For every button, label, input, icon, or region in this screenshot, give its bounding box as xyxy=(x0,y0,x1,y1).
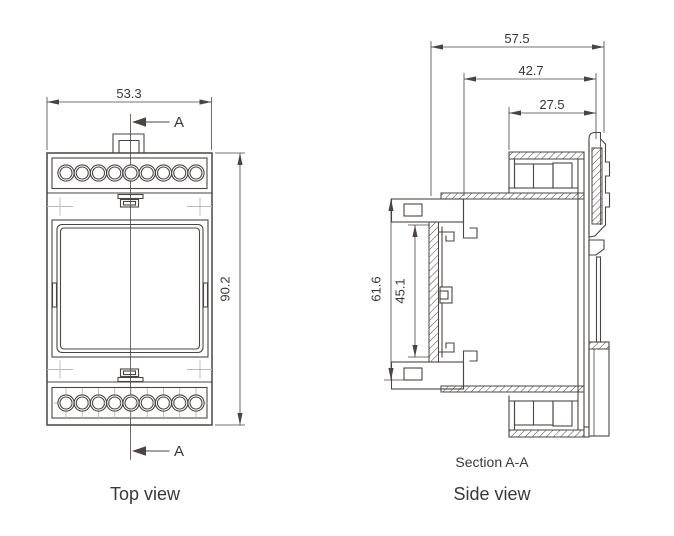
dim-arrow-icon xyxy=(431,44,443,49)
front-button-section xyxy=(440,287,452,303)
din-latch-tab xyxy=(113,134,144,153)
terminal-block-bottom xyxy=(52,388,208,419)
section-arrow-icon xyxy=(132,117,146,127)
device-body-top-view xyxy=(47,134,212,425)
dim-arrow-icon xyxy=(388,199,393,211)
section-label: Section A-A xyxy=(455,454,529,470)
display-window xyxy=(52,220,208,357)
dim-arrow-icon xyxy=(584,76,596,81)
bottom-terminal-section xyxy=(509,396,584,437)
terminal-row-top xyxy=(58,165,204,181)
dim-arrow-icon xyxy=(509,110,521,115)
dim-arrow-icon xyxy=(388,368,393,380)
technical-drawing: 53.3 90.2 A A Top view xyxy=(0,0,674,536)
dim-terminal-depth-label: 27.5 xyxy=(539,97,564,112)
terminal-row-bottom xyxy=(54,388,208,418)
din-rail-clip xyxy=(589,133,610,343)
mounting-foot xyxy=(589,342,609,436)
front-window-wall xyxy=(429,222,454,362)
dim-rail-to-front-label: 42.7 xyxy=(518,63,543,78)
dim-height: 90.2 xyxy=(215,153,245,425)
dim-arrow-icon xyxy=(200,99,212,104)
dim-arrow-icon xyxy=(47,99,59,104)
dim-front-height-label: 61.6 xyxy=(369,276,384,301)
top-deck-section xyxy=(441,193,584,199)
clip-lower-bracket xyxy=(589,240,604,255)
top-view-drawing: 53.3 90.2 A A Top view xyxy=(47,86,245,504)
dim-window-height-label: 45.1 xyxy=(393,278,408,303)
dim-height-label: 90.2 xyxy=(218,276,233,301)
dim-arrow-icon xyxy=(592,44,604,49)
dim-arrow-icon xyxy=(237,153,242,165)
section-marker-label: A xyxy=(174,443,184,460)
dim-terminal-depth: 27.5 xyxy=(509,97,596,150)
dim-window-height: 45.1 xyxy=(393,225,431,357)
device-outline xyxy=(47,153,212,425)
section-marker-bottom: A xyxy=(132,443,184,460)
bottom-deck-section xyxy=(441,386,584,392)
dim-overall-depth-label: 57.5 xyxy=(504,31,529,46)
side-view-title: Side view xyxy=(453,484,531,504)
dim-arrow-icon xyxy=(584,110,596,115)
top-view-title: Top view xyxy=(110,484,181,504)
terminal-block-top xyxy=(52,158,207,189)
dim-arrow-icon xyxy=(412,345,417,357)
dim-arrow-icon xyxy=(412,225,417,237)
dim-width-label: 53.3 xyxy=(116,86,141,101)
top-terminal-section xyxy=(509,152,584,193)
side-view-drawing: 57.5 42.7 27.5 61.6 xyxy=(369,31,610,504)
dim-rail-to-front: 42.7 xyxy=(464,63,596,196)
section-marker-label: A xyxy=(174,114,184,131)
technical-drawing-canvas: 53.3 90.2 A A Top view xyxy=(0,0,674,536)
window-side-clip-right xyxy=(204,283,208,307)
dim-arrow-icon xyxy=(237,413,242,425)
section-arrow-icon xyxy=(132,446,146,456)
window-side-clip-left xyxy=(53,283,57,307)
section-marker-top: A xyxy=(132,114,184,131)
dim-arrow-icon xyxy=(464,76,476,81)
